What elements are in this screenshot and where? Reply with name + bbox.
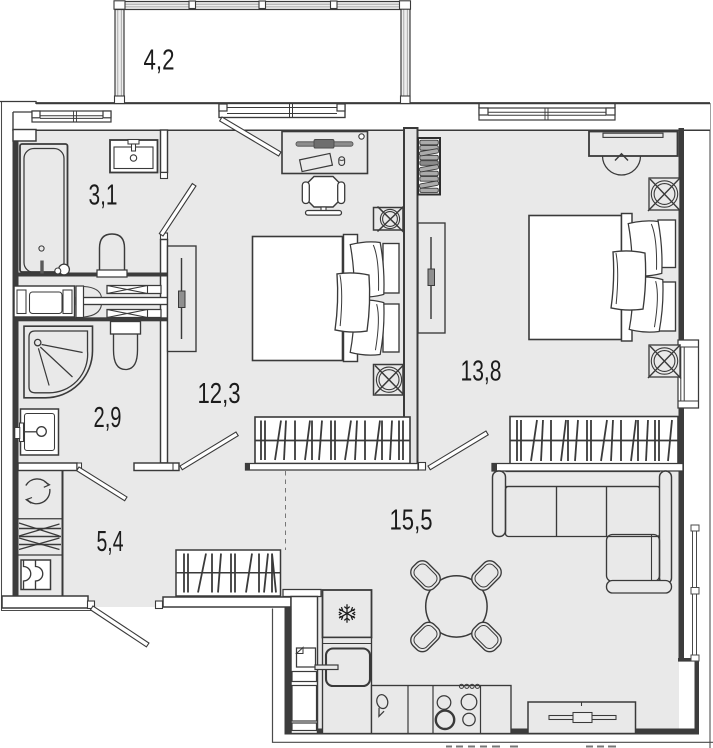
- svg-text:12,3: 12,3: [198, 378, 241, 410]
- svg-text:13,8: 13,8: [461, 356, 502, 388]
- svg-text:5,4: 5,4: [97, 526, 124, 558]
- svg-text:4,2: 4,2: [144, 45, 175, 77]
- svg-text:15,5: 15,5: [390, 505, 433, 537]
- svg-text:2,9: 2,9: [94, 402, 122, 434]
- svg-text:3,1: 3,1: [89, 180, 118, 212]
